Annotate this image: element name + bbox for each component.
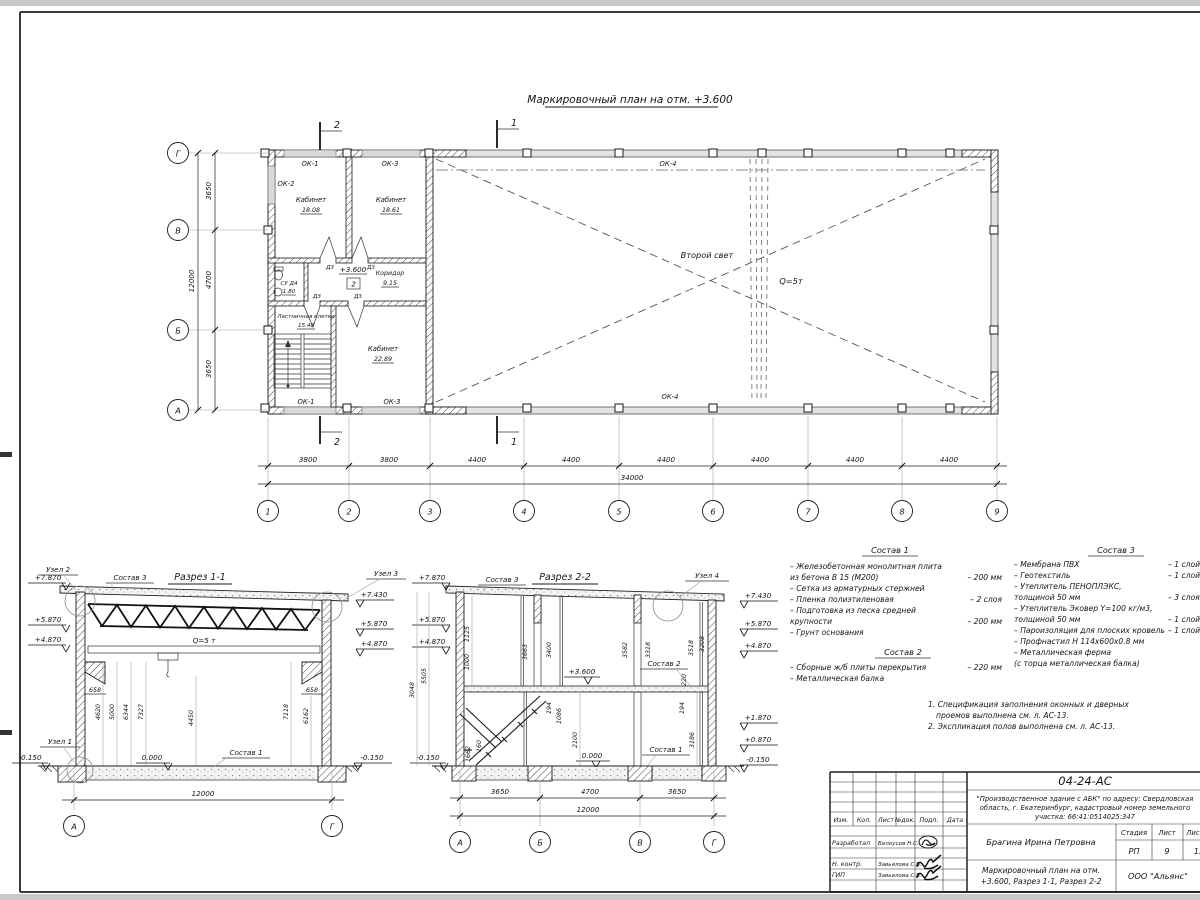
col-header: Изм. (834, 817, 849, 824)
dim: 6162 (303, 708, 310, 724)
dim-total: 12000 (187, 269, 196, 292)
level-mark: -0.150 (18, 753, 42, 762)
room-area: 18.08 (302, 207, 320, 214)
sostav-line: – Железобетонная монолитная плита (790, 562, 942, 571)
sostav-value: – 1 слой (1168, 615, 1200, 624)
dim: 160 (476, 740, 483, 752)
axis-bubble: 5 (616, 507, 621, 517)
axis-bubble: А (174, 406, 181, 416)
note-line: проемов выполнена см. л. АС-13. (936, 711, 1069, 720)
dim: 4400 (562, 455, 581, 464)
sostav-line: – Утеплитель ПЕНОПЛЭКС, (1014, 582, 1122, 591)
axis-bubble: 3 (427, 507, 432, 517)
note-line: 2. Экспликация полов выполнена см. л. АС… (928, 722, 1115, 731)
notes: 1. Спецификация заполнения оконных и две… (928, 700, 1129, 731)
role: Н. контр. (832, 861, 862, 868)
dim: 3800 (380, 455, 399, 464)
dim: 6344 (123, 704, 130, 720)
drawing-sheet: Маркировочный план на отм. +3.600 Второй… (0, 0, 1200, 900)
dim: 3318 (645, 642, 652, 658)
dim-total: 12000 (192, 789, 215, 798)
project-name: участка: 66:41:0514025:347 (1034, 813, 1136, 821)
room-area: 1.80 (283, 289, 296, 295)
level-mark: +7.430 (361, 590, 388, 599)
dim: 3663 (522, 644, 529, 660)
col-header: Дата (946, 817, 963, 824)
room-name: Кабинет (376, 196, 407, 204)
axis-bubble: Б (537, 838, 543, 848)
dim: 4400 (940, 455, 959, 464)
sostav1-title: Состав 1 (871, 545, 909, 555)
dim: 220 (681, 674, 688, 686)
drawing-title: Маркировочный план на отм. (982, 866, 1100, 875)
column-markers (261, 149, 998, 412)
roof-truss (88, 604, 320, 630)
window-tag: ОК-1 (298, 398, 315, 406)
axis-bubble: 2 (346, 507, 351, 517)
axis-bubbles-bottom: 1 2 3 4 5 6 7 8 9 (258, 501, 1008, 522)
dim: 3048 (409, 682, 416, 698)
dim: 194 (546, 702, 553, 714)
dim-total: 34000 (621, 473, 644, 482)
cut-mark-1: 1 (511, 437, 517, 448)
dim: 5505 (421, 668, 428, 684)
sostav1-ref: Состав 1 (229, 748, 262, 757)
axis-bubbles-left: Г В Б А (168, 143, 189, 421)
sostav-value: – 1 слой (1168, 571, 1200, 580)
level-mark: +5.870 (361, 619, 388, 628)
dim: 4700 (204, 270, 213, 289)
level-mark: -0.150 (416, 753, 440, 762)
drawing-title: +3.600, Разрез 1-1, Разрез 2-2 (981, 877, 1102, 886)
sostav3-ref: Состав 3 (485, 575, 518, 584)
window-ok3-bottom (362, 407, 420, 414)
sostav-line: (с торца металлическая балка) (1014, 659, 1140, 668)
dim: 7327 (138, 704, 145, 720)
dim: 5000 (109, 704, 116, 720)
project-name: "Производственное здание с АБК" по адрес… (977, 795, 1194, 803)
stage-value: РП (1128, 846, 1139, 856)
sostav-line: – Пароизоляция для плоских кровель (1014, 626, 1165, 635)
dim: 4400 (468, 455, 487, 464)
node-label: Узел 4 (695, 571, 720, 580)
dim: 2100 (572, 732, 579, 748)
crane-capacity-label: Q=5т (779, 276, 803, 286)
level-mark: +7.870 (35, 573, 62, 582)
dim: 194 (679, 702, 686, 714)
level-mark: +3.600 (569, 667, 596, 676)
corbel-dim: 658 (89, 687, 101, 694)
dim: 4450 (188, 710, 195, 726)
window-tag: ОК-2 (278, 180, 295, 188)
sostav-line: – Металлическая ферма (1014, 648, 1111, 657)
window-ok1-bottom (284, 407, 336, 414)
col-header: №док. (894, 817, 916, 824)
storey-number: 2 (351, 280, 356, 289)
col-header: Кол. (857, 817, 871, 824)
sostav-line: – Пленка полиэтиленовая (790, 595, 894, 604)
node-label: Узел 2 (46, 565, 71, 574)
dim: 1086 (556, 708, 563, 724)
level-mark: +5.870 (35, 615, 62, 624)
sostav-line: – Мембрана ПВХ (1014, 560, 1080, 569)
axis-bubble: 8 (899, 507, 904, 517)
axis-bubble: А (70, 822, 77, 832)
window-ok2-left (268, 166, 275, 204)
section-stairs (460, 696, 546, 765)
sostav-value: – 3 слоя (1168, 593, 1200, 602)
door-tag: Д3 (353, 294, 362, 300)
dim: 3800 (299, 455, 318, 464)
room-name: Кабинет (368, 345, 399, 353)
doc-number: 04-24-АС (1058, 774, 1111, 788)
room-area: 15.48 (298, 323, 314, 329)
staircase (274, 334, 331, 388)
level-mark: 0.000 (582, 751, 603, 760)
dim: 1125 (464, 626, 471, 642)
dim-total: 12000 (577, 805, 600, 814)
room-area: 22.89 (374, 356, 392, 363)
room-name: СУ Д4 (280, 281, 297, 287)
dim: 4400 (846, 455, 865, 464)
section2-title: Разрез 2-2 (539, 572, 590, 583)
sostav-value: – 2 слоя (970, 595, 1002, 604)
sostav-line: из бетона В 15 (М200) (790, 573, 879, 582)
level-mark: 0.000 (142, 753, 163, 762)
dim: 4700 (581, 787, 600, 796)
door-tag: Д3 (325, 265, 334, 271)
level-mark: +4.870 (419, 637, 446, 646)
person: Завьялова С.В. (878, 873, 922, 879)
crane-beam (88, 646, 320, 653)
sostav-line: – Подготовка из песка средней (790, 606, 916, 615)
level-mark: +5.870 (419, 615, 446, 624)
sheet-label: Лист (1157, 829, 1176, 837)
title-block: Изм. Кол. Лист №док. Подп. Дата Разработ… (830, 772, 1200, 892)
section-1-1: Разрез 1-1 Q=5 т 658 658 4620 (12, 565, 406, 837)
section2-dims: 3048 5505 1125 1000 3663 3400 3582 3318 … (409, 592, 706, 766)
sheets-value: 13 (1194, 846, 1200, 856)
crane-corbel-right (302, 662, 322, 684)
room-labels: Кабинет 18.08 Кабинет 18.61 Коридор 9.15… (276, 160, 678, 406)
level-mark: -0.150 (746, 755, 770, 764)
axis-bubble: 4 (521, 507, 526, 517)
interior-structure (521, 595, 703, 766)
axis-bubble: 1 (265, 507, 270, 517)
sheet-value: 9 (1164, 846, 1169, 856)
sostav1-ref: Состав 1 (649, 745, 682, 754)
dim: 4400 (751, 455, 770, 464)
window-tag: ОК-1 (302, 160, 319, 168)
dim: 3400 (546, 642, 553, 658)
level-mark: +1.870 (745, 713, 772, 722)
role: ГИП (832, 872, 845, 879)
dim: 1662 (465, 746, 472, 762)
dim: 7118 (283, 704, 290, 720)
sostav2-title: Состав 2 (884, 647, 922, 657)
sostav-line: – Сетка из арматурных стержней (790, 584, 925, 593)
dim: 1000 (464, 654, 471, 670)
engineer-name: Брагина Ирина Петровна (986, 837, 1095, 847)
door-tag: Д3 (312, 294, 321, 300)
room-area: 18.61 (382, 207, 400, 214)
section1-title: Разрез 1-1 (174, 572, 225, 583)
dim: 4400 (657, 455, 676, 464)
floor-plan: Маркировочный план на отм. +3.600 Второй… (261, 94, 998, 448)
axis-bubble: 9 (994, 507, 999, 517)
axis-bubble: А (456, 838, 463, 848)
cut-mark-2: 2 (334, 437, 340, 448)
sheet-chrome (0, 0, 1200, 900)
dim: 3650 (668, 787, 687, 796)
window-tag: ОК-4 (662, 393, 679, 401)
sostav-lists: Состав 1 – Железобетонная монолитная пли… (790, 545, 1200, 683)
level-mark: +7.430 (745, 591, 772, 600)
room-area: 9.15 (383, 280, 397, 287)
cut-mark-2: 2 (334, 120, 340, 131)
axis-bubble: 6 (710, 507, 715, 517)
level-mark: +5.870 (745, 619, 772, 628)
level-mark: -0.150 (360, 753, 384, 762)
room-name: Лестничная клетка (276, 314, 335, 320)
sostav-line: толщиной 50 мм (1014, 593, 1081, 602)
sostav-value: – 200 мм (967, 617, 1002, 626)
sostav-line: – Утеплитель Эковер Y=100 кг/м3, (1014, 604, 1152, 613)
sostav-line: – Сборные ж/б плиты перекрытия (790, 663, 927, 672)
cut-mark-1: 1 (511, 118, 517, 129)
room-name: Кабинет (296, 196, 327, 204)
hall-bracing: Второй свет Q=5т (436, 159, 985, 402)
plan-level-mark: +3.600 (340, 265, 367, 274)
plan-title: Маркировочный план на отм. +3.600 (527, 94, 733, 106)
node-label: Узел 1 (48, 737, 72, 746)
col-header: Подп. (919, 817, 938, 824)
company-name: ООО "Альянс" (1128, 871, 1188, 881)
level-mark: +0.870 (745, 735, 772, 744)
door-tag: Д3 (366, 265, 375, 271)
sostav-value: – 220 мм (967, 663, 1002, 672)
level-mark: +4.870 (35, 635, 62, 644)
axis-bubble: Б (175, 326, 181, 336)
dim: 3518 (688, 640, 695, 656)
dim: 3650 (204, 359, 213, 378)
crane-label: Q=5 т (193, 636, 217, 645)
col-header: Лист (877, 817, 894, 824)
crane-corbel-left (85, 662, 105, 684)
plan-dimensions: 3800 3800 4400 4400 4400 4400 4400 4400 … (168, 143, 1008, 522)
level-mark: +4.870 (361, 639, 388, 648)
window-ok3-top (362, 150, 420, 157)
sheets-label: Листов (1185, 829, 1200, 837)
plan-walls (261, 149, 998, 414)
window-tag: ОК-3 (382, 160, 399, 168)
sostav-line: – Грунт основания (790, 628, 864, 637)
axis-bubble: 7 (805, 507, 811, 517)
note-line: 1. Спецификация заполнения оконных и две… (928, 700, 1129, 709)
sostav-line: толщиной 50 мм (1014, 615, 1081, 624)
crane-trolley (158, 653, 178, 660)
node-label: Узел 3 (374, 569, 399, 578)
section-2-2: Разрез 2-2 +3.600 +7.870 (409, 571, 778, 853)
level-mark: +7.870 (419, 573, 446, 582)
second-light-label: Второй свет (681, 250, 734, 260)
axis-bubble: В (175, 226, 181, 236)
role: Разработал (832, 839, 870, 847)
dim: 3208 (699, 636, 706, 652)
sostav3-ref: Состав 3 (113, 573, 146, 582)
window-tag: ОК-4 (660, 160, 677, 168)
centering-mark (0, 452, 12, 457)
centering-mark (0, 730, 12, 735)
corbel-dim: 658 (306, 687, 318, 694)
sostav-value: – 1 слой (1168, 560, 1200, 569)
sostav-value: – 200 мм (967, 573, 1002, 582)
room-name: Коридор (376, 270, 405, 277)
dim: 3582 (622, 642, 629, 658)
dim: 3186 (689, 732, 696, 748)
person: Белоусов Н.С. (878, 841, 919, 847)
sostav-line: крупности (790, 617, 832, 626)
dim: 3650 (491, 787, 510, 796)
axis-bubble: В (637, 838, 643, 848)
dim: 3650 (204, 181, 213, 200)
level-mark: +4.870 (745, 641, 772, 650)
sostav-line: – Металлическая балка (790, 674, 884, 683)
slab-3600 (464, 686, 708, 692)
project-name: область, г. Екатеринбург, кадастровый но… (980, 804, 1191, 812)
sostav-line: – Профнастил Н 114х600х0.8 мм (1014, 637, 1145, 646)
stage-label: Стадия (1121, 829, 1147, 837)
sostav-value: – 1 слой (1168, 626, 1200, 635)
window-tag: ОК-3 (384, 398, 401, 406)
window-ok1-top (284, 150, 336, 157)
sostav-line: – Геотекстиль (1014, 571, 1070, 580)
person: Завьялова С.В. (878, 862, 922, 868)
dim: 4620 (95, 704, 102, 720)
sostav3-title: Состав 3 (1097, 545, 1135, 555)
sostav2-ref: Состав 2 (647, 659, 680, 668)
